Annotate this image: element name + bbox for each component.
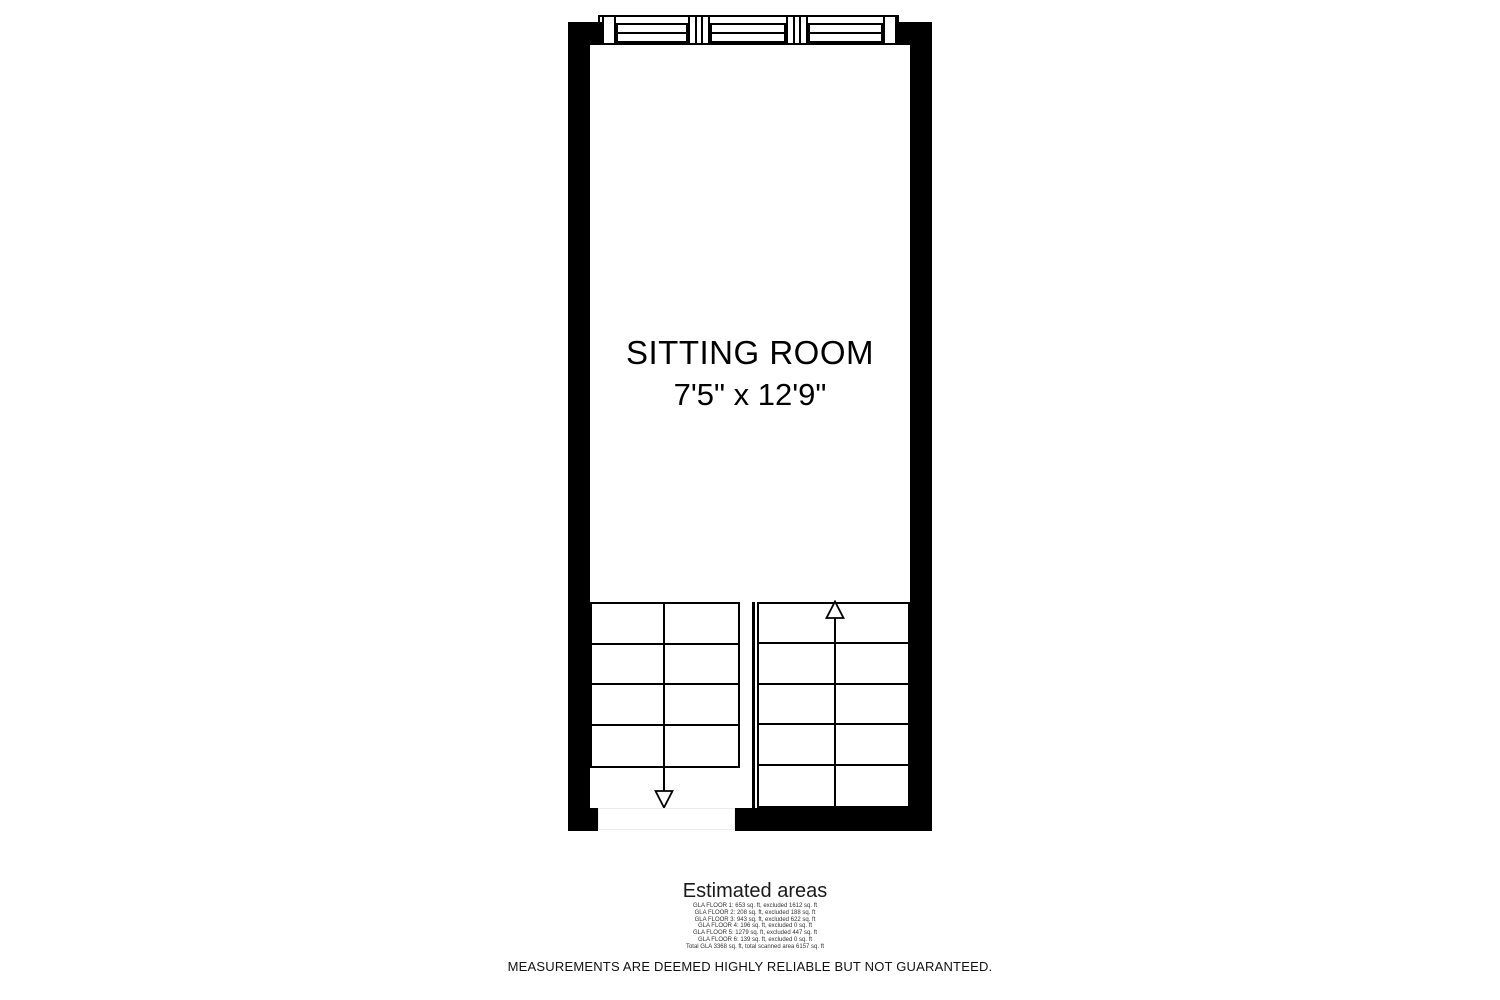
disclaimer-text: MEASUREMENTS ARE DEEMED HIGHLY RELIABLE … — [0, 959, 1500, 974]
window-band — [598, 15, 899, 45]
room-dimensions: 7'5" x 12'9" — [590, 376, 910, 413]
window-frame-cap — [602, 17, 616, 43]
wall-right — [910, 22, 932, 831]
wall-left — [568, 22, 590, 831]
window-mullion — [688, 17, 697, 43]
window-frame-cap — [883, 17, 897, 43]
stair-opening — [598, 808, 735, 830]
window-mullion — [786, 17, 795, 43]
window-pane — [710, 23, 786, 43]
window-pane — [616, 23, 688, 43]
gla-line: GLA FLOOR 6: 139 sq. ft, excluded 0 sq. … — [0, 937, 1500, 944]
gla-line: GLA FLOOR 2: 208 sq. ft, excluded 188 sq… — [0, 910, 1500, 917]
stair-tread-line — [592, 683, 738, 685]
stair-divider — [752, 602, 755, 808]
estimated-areas-title: Estimated areas — [0, 880, 1500, 902]
gla-line: GLA FLOOR 4: 196 sq. ft, excluded 0 sq. … — [0, 923, 1500, 930]
room-name: SITTING ROOM — [590, 333, 910, 373]
stairs-down-arrow-icon — [653, 789, 675, 809]
estimated-areas-block: Estimated areas GLA FLOOR 1: 653 sq. ft,… — [0, 880, 1500, 951]
window-mullion — [701, 17, 710, 43]
stair-tread-line — [592, 724, 738, 726]
gla-line: GLA FLOOR 1: 653 sq. ft, excluded 1612 s… — [0, 903, 1500, 910]
wall-bottom-stub — [568, 808, 598, 831]
gla-line: GLA FLOOR 5: 1279 sq. ft, excluded 447 s… — [0, 930, 1500, 937]
wall-bottom — [735, 808, 932, 831]
estimated-areas-lines: GLA FLOOR 1: 653 sq. ft, excluded 1612 s… — [0, 903, 1500, 951]
gla-line: Total GLA 3368 sq. ft, total scanned are… — [0, 944, 1500, 951]
stair-flight-left — [590, 602, 740, 768]
wall-corner-right — [896, 22, 932, 45]
stair-direction-line-up — [834, 618, 836, 808]
window-mullion — [799, 17, 808, 43]
wall-corner-left — [568, 22, 602, 45]
room-label-block: SITTING ROOM 7'5" x 12'9" — [590, 333, 910, 413]
gla-line: GLA FLOOR 3: 943 sq. ft, excluded 622 sq… — [0, 917, 1500, 924]
stair-direction-line-down — [663, 602, 665, 792]
window-pane — [808, 23, 883, 43]
stair-tread-line — [592, 643, 738, 645]
stairs-up-arrow-icon — [824, 600, 846, 620]
